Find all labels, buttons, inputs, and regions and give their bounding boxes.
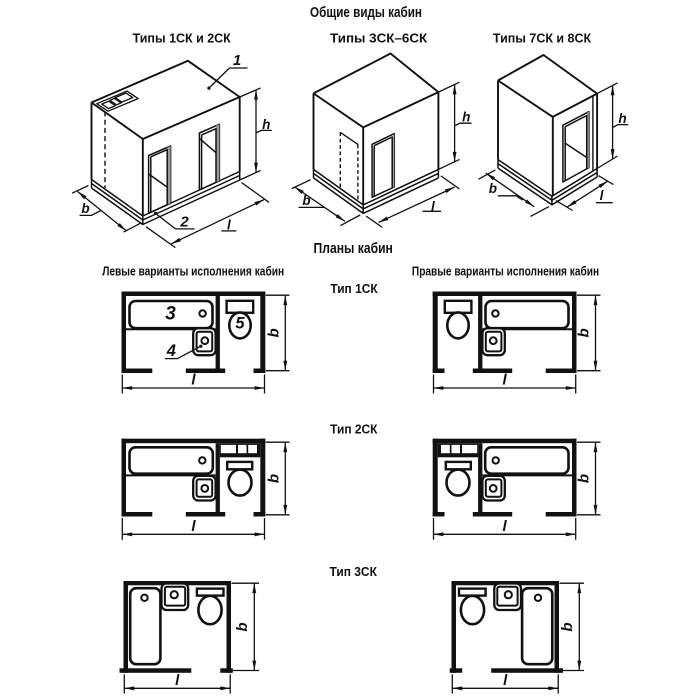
svg-text:l: l (175, 672, 180, 689)
svg-text:l: l (503, 518, 508, 535)
svg-text:b: b (489, 181, 497, 196)
svg-text:3: 3 (165, 304, 176, 325)
svg-text:l: l (191, 372, 196, 389)
svg-text:l: l (503, 372, 508, 389)
svg-text:4: 4 (166, 342, 176, 360)
svg-text:b: b (266, 328, 283, 337)
svg-text:Планы кабин: Планы кабин (314, 240, 393, 256)
svg-text:Тип 3СК: Тип 3СК (330, 565, 378, 580)
svg-text:Типы 3СК–6СК: Типы 3СК–6СК (330, 31, 428, 46)
svg-text:h: h (262, 117, 270, 132)
svg-text:b: b (559, 622, 576, 631)
svg-text:b: b (81, 201, 89, 216)
svg-text:l: l (600, 188, 604, 203)
svg-text:l: l (503, 672, 508, 689)
svg-text:1: 1 (233, 52, 241, 69)
svg-text:h: h (618, 111, 626, 126)
svg-text:Правые варианты исполнения каб: Правые варианты исполнения кабин (412, 264, 599, 278)
svg-text:Тип 2СК: Тип 2СК (330, 422, 378, 437)
svg-text:Типы 7СК и 8СК: Типы 7СК и 8СК (493, 30, 591, 45)
svg-text:2: 2 (179, 214, 189, 231)
svg-text:Левые варианты исполнения каби: Левые варианты исполнения кабин (102, 264, 284, 278)
svg-text:l: l (431, 199, 435, 214)
svg-text:b: b (234, 622, 251, 631)
svg-text:5: 5 (235, 315, 245, 333)
svg-text:Тип 1СК: Тип 1СК (330, 282, 378, 297)
svg-text:b: b (576, 474, 593, 483)
svg-text:b: b (266, 474, 283, 483)
svg-text:b: b (576, 328, 593, 337)
svg-text:l: l (227, 218, 231, 233)
svg-text:b: b (302, 193, 310, 208)
svg-text:Типы 1СК и 2СК: Типы 1СК и 2СК (133, 30, 231, 45)
svg-text:l: l (191, 518, 196, 535)
svg-text:Общие виды кабин: Общие виды кабин (310, 4, 422, 21)
svg-text:h: h (462, 110, 470, 125)
